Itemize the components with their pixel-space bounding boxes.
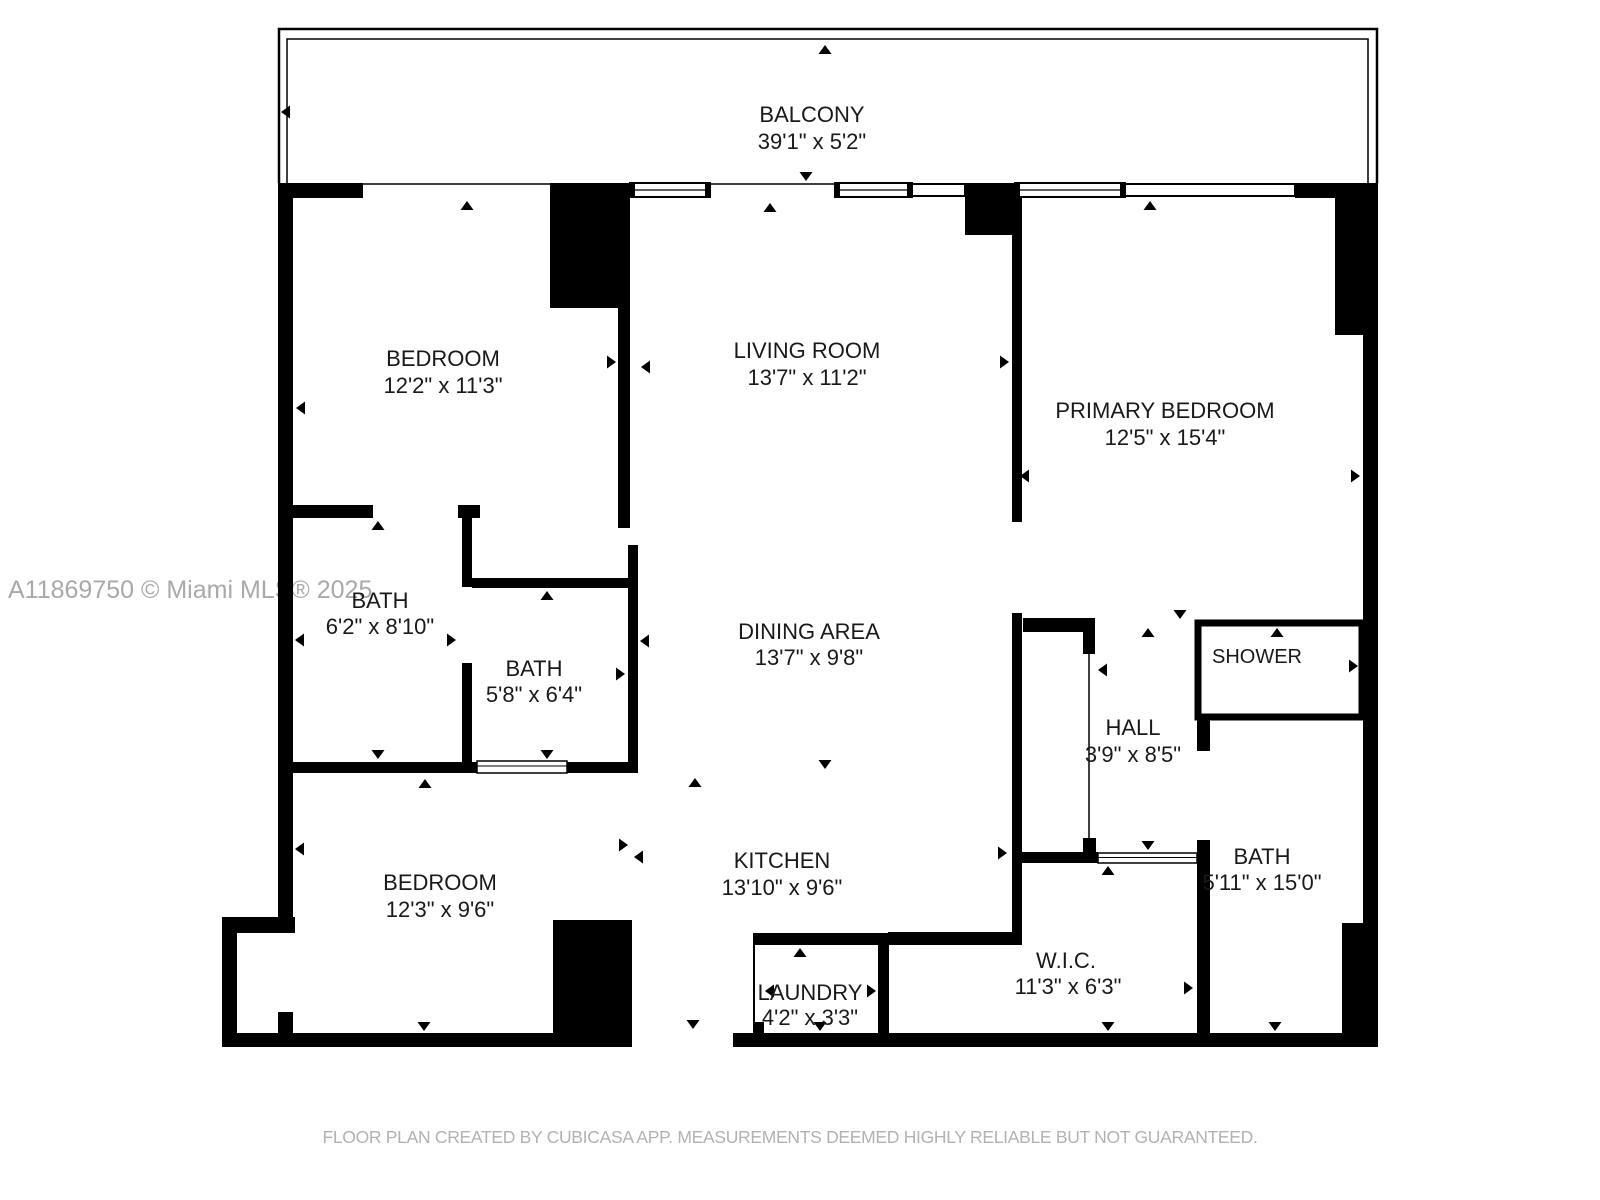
room-dims-living: 13'7" x 11'2" [747, 365, 866, 390]
room-label-bath3: BATH [1233, 844, 1290, 869]
thin-wall-band [1125, 184, 1295, 196]
room-labels: BALCONY 39'1" x 5'2" BEDROOM 12'2" x 11'… [326, 102, 1322, 1030]
room-dims-bath2: 5'8" x 6'4" [486, 682, 582, 707]
sliding-door-icon [1098, 853, 1197, 863]
sliding-door-icon [477, 761, 567, 773]
window-icon [835, 183, 912, 197]
window-icons [363, 183, 1295, 197]
room-dims-kitchen: 13'10" x 9'6" [722, 875, 843, 900]
room-dims-dining: 13'7" x 9'8" [755, 645, 863, 670]
room-label-living: LIVING ROOM [734, 338, 881, 363]
room-dims-wic: 11'3" x 6'3" [1015, 974, 1122, 999]
room-dims-bedroom2: 12'3" x 9'6" [386, 897, 494, 922]
room-dims-bath1: 6'2" x 8'10" [326, 614, 434, 639]
thin-wall-band [912, 184, 965, 196]
room-label-kitchen: KITCHEN [734, 848, 831, 873]
window-icon [1015, 183, 1125, 197]
footer-disclaimer: FLOOR PLAN CREATED BY CUBICASA APP. MEAS… [322, 1127, 1257, 1147]
floor-plan-drawing: A11869750 © Miami MLS® 2025 [0, 0, 1600, 1200]
room-label-bath2: BATH [505, 656, 562, 681]
room-dims-laundry: 4'2" x 3'3" [762, 1005, 858, 1030]
room-dims-bedroom1: 12'2" x 11'3" [383, 373, 502, 398]
room-label-bath1: BATH [351, 588, 408, 613]
room-dims-primary: 12'5" x 15'4" [1105, 425, 1226, 450]
mls-watermark: A11869750 © Miami MLS® 2025 [8, 576, 372, 604]
floor-plan-canvas: A11869750 © Miami MLS® 2025 [0, 0, 1600, 1200]
shower-enclosure [1198, 623, 1362, 717]
window-icon [630, 183, 710, 197]
room-dims-hall: 3'9" x 8'5" [1085, 742, 1181, 767]
room-dims-balcony: 39'1" x 5'2" [758, 129, 866, 154]
room-label-hall: HALL [1105, 715, 1160, 740]
room-label-shower: SHOWER [1212, 646, 1302, 668]
room-label-bedroom2: BEDROOM [383, 870, 497, 895]
room-dims-bath3: 5'11" x 15'0" [1202, 870, 1321, 895]
room-label-dining: DINING AREA [738, 619, 880, 644]
room-label-bedroom1: BEDROOM [386, 346, 500, 371]
room-label-laundry: LAUNDRY [758, 980, 863, 1005]
room-label-wic: W.I.C. [1036, 948, 1096, 973]
room-label-balcony: BALCONY [759, 102, 864, 127]
room-label-primary: PRIMARY BEDROOM [1055, 398, 1274, 423]
